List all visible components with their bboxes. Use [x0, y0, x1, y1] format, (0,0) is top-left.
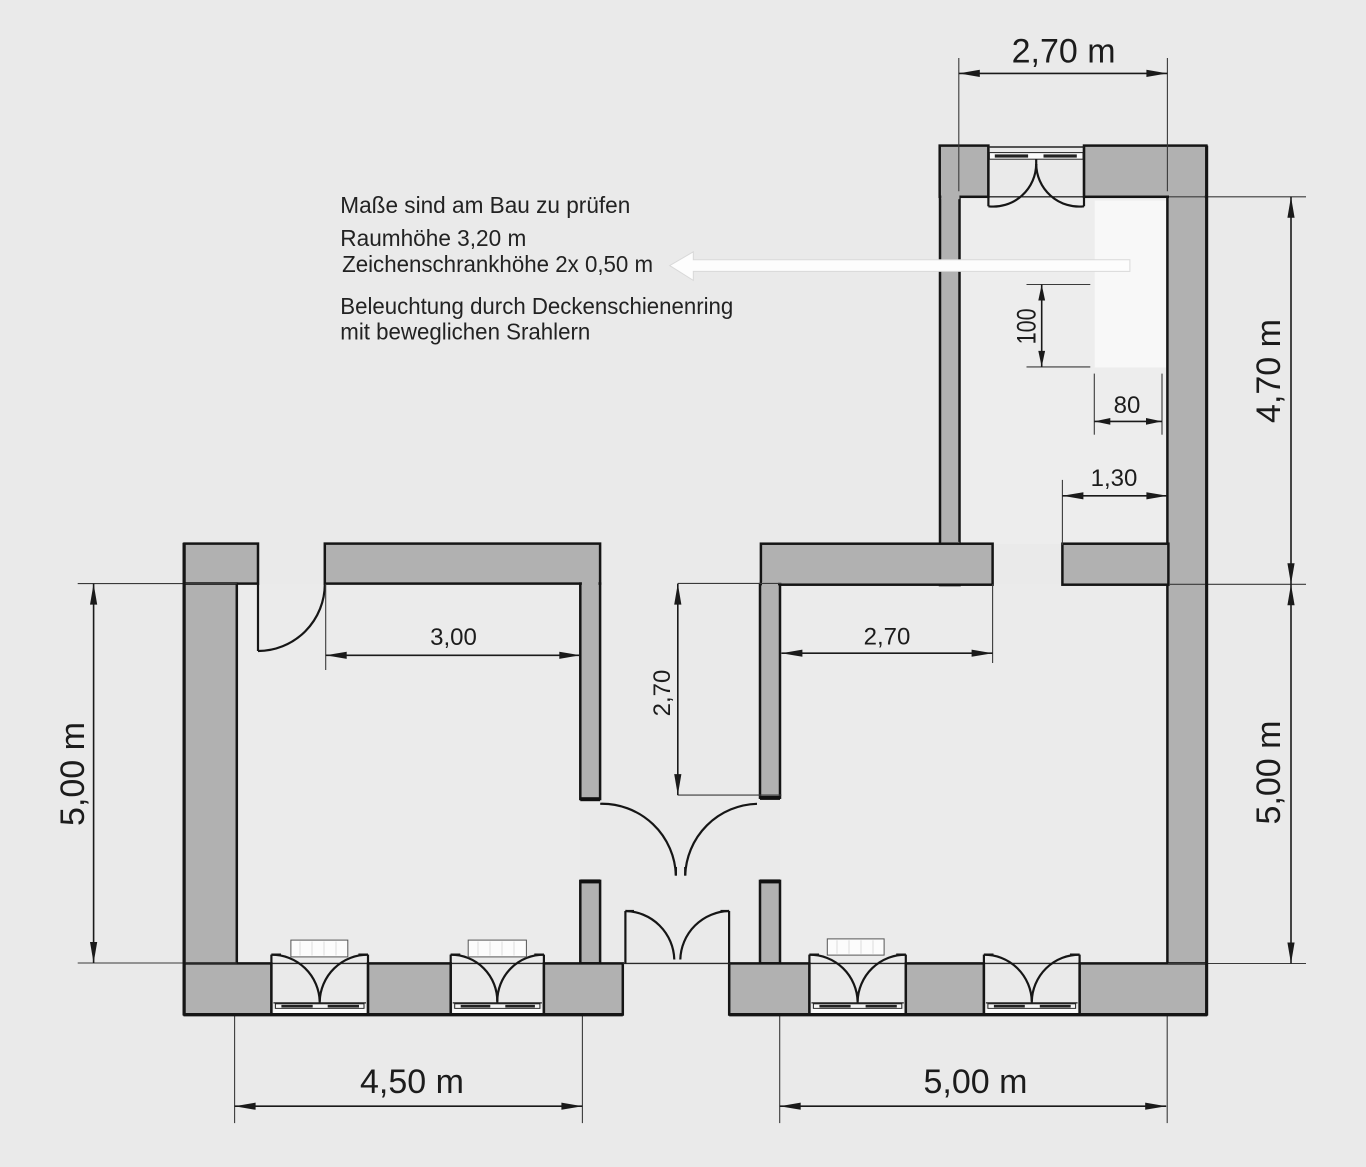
svg-text:1,30: 1,30	[1091, 465, 1138, 492]
svg-text:5,00 m: 5,00 m	[924, 1063, 1028, 1101]
svg-text:Zeichenschrankhöhe 2x 0,50 m: Zeichenschrankhöhe 2x 0,50 m	[342, 251, 653, 277]
svg-text:Beleuchtung durch Deckenschien: Beleuchtung durch Deckenschienenring	[340, 293, 733, 319]
svg-text:2,70: 2,70	[864, 624, 911, 651]
svg-text:2,70: 2,70	[649, 670, 676, 717]
svg-text:5,00 m: 5,00 m	[54, 722, 92, 826]
svg-text:100: 100	[1012, 308, 1042, 344]
svg-text:Raumhöhe 3,20 m: Raumhöhe 3,20 m	[340, 225, 526, 251]
svg-text:4,50 m: 4,50 m	[360, 1063, 464, 1101]
svg-text:mit beweglichen Srahlern: mit beweglichen Srahlern	[340, 319, 590, 345]
svg-text:80: 80	[1114, 392, 1141, 419]
svg-text:2,70 m: 2,70 m	[1012, 33, 1116, 71]
svg-text:Maße sind am Bau zu prüfen: Maße sind am Bau zu prüfen	[340, 192, 630, 218]
svg-text:4,70 m: 4,70 m	[1250, 319, 1288, 423]
svg-text:3,00: 3,00	[430, 624, 477, 651]
svg-text:5,00 m: 5,00 m	[1250, 721, 1288, 825]
